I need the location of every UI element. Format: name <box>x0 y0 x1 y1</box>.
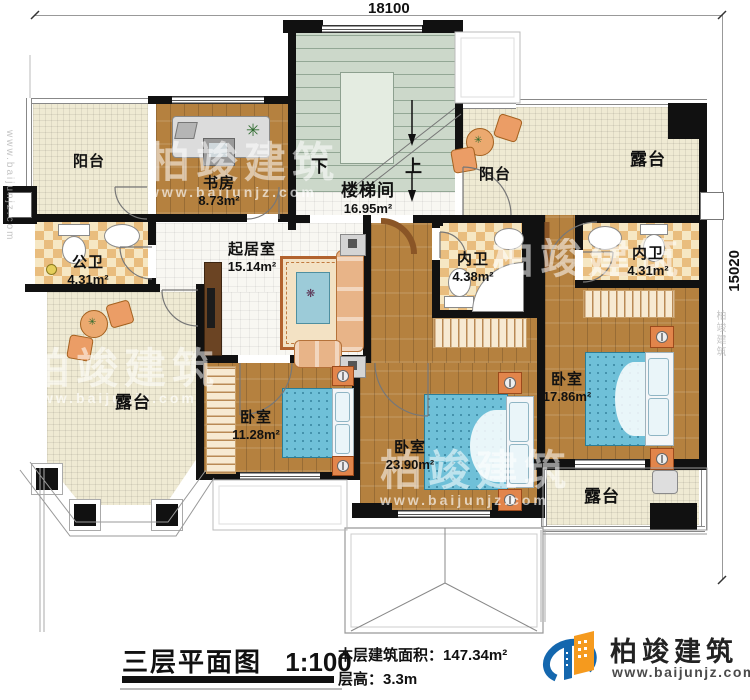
room-label-living: 起居室 15.14m² <box>228 238 276 274</box>
chair-icon <box>66 334 94 362</box>
roof-box-inner <box>461 38 514 97</box>
floorplan-canvas: 18100 15020 <box>0 0 750 700</box>
sink-icon <box>104 224 140 248</box>
wall <box>28 214 150 222</box>
floor-area-label: 本层建筑面积： <box>338 647 443 664</box>
wall <box>150 214 247 222</box>
pillar <box>36 468 58 490</box>
wall <box>278 214 296 222</box>
corridor-floor <box>371 223 432 363</box>
railing-balcony-tl-top <box>26 98 150 104</box>
room-label-bedroom-mid: 卧室 23.90m² <box>386 436 434 472</box>
brand-logo-icon <box>542 626 604 690</box>
sofa-icon <box>336 250 364 352</box>
brand-url: www.baijunjz.com <box>612 664 750 680</box>
wall <box>288 25 296 230</box>
nightstand-icon <box>332 456 354 476</box>
floor-area-value: 147.34m² <box>443 647 507 664</box>
wall <box>530 215 545 318</box>
wall <box>575 222 583 250</box>
title-underline-thick <box>122 676 334 683</box>
tv-icon <box>207 288 215 328</box>
nightstand-icon <box>650 326 674 348</box>
pillar <box>74 504 96 526</box>
wall <box>196 355 238 363</box>
side-table-lamp <box>348 239 357 248</box>
window-study <box>172 96 264 104</box>
window-box-right <box>700 192 724 220</box>
nightstand-icon <box>498 372 522 394</box>
nightstand-icon <box>498 489 522 511</box>
wall <box>455 25 463 162</box>
floor-height-label: 层高： <box>338 671 383 688</box>
floor-area-line: 本层建筑面积：147.34m² <box>338 644 507 665</box>
dimension-line-right <box>722 15 723 580</box>
wardrobe-hangers-icon <box>583 290 675 318</box>
roof-box-outline <box>455 32 520 103</box>
toilet-tank-icon <box>444 296 474 308</box>
wall-column <box>668 103 707 139</box>
eave-outline-inner <box>219 486 341 524</box>
sink-icon <box>588 226 622 250</box>
stair-landing <box>340 72 394 164</box>
room-label-bedroom-right: 卧室 17.86m² <box>543 368 591 404</box>
sink-icon <box>494 228 524 250</box>
plan-title-text: 三层平面图 <box>122 647 262 677</box>
wall <box>575 215 707 223</box>
table-plant-icon: ✳ <box>88 318 98 328</box>
wall <box>432 222 440 228</box>
plan-title: 三层平面图 1:100 <box>122 642 352 679</box>
room-label-balcony-tr: 阳台 <box>479 163 511 184</box>
room-label-terrace-bl: 露台 <box>115 388 151 413</box>
title-underline-thin <box>120 688 342 690</box>
nightstand-icon <box>650 448 674 470</box>
room-label-balcony-tl: 阳台 <box>73 150 105 171</box>
wall-column <box>650 503 697 530</box>
pillar <box>156 504 178 526</box>
dimension-top-value: 18100 <box>368 0 410 17</box>
desk-lamp-icon <box>174 122 198 139</box>
small-table-icon <box>652 470 678 494</box>
wall-corner-block <box>352 503 392 518</box>
room-label-public-bath: 公卫 4.31m² <box>67 251 108 287</box>
wardrobe-hangers-icon <box>433 318 527 348</box>
wall <box>537 318 545 518</box>
pillow-icon <box>509 402 529 442</box>
window-bedroom-right <box>575 459 645 470</box>
room-label-study: 书房 8.73m² <box>198 172 239 208</box>
room-label-terrace-br: 露台 <box>584 482 620 507</box>
room-label-bath1: 内卫 4.38m² <box>452 248 493 284</box>
stair-down-label: 下 <box>311 152 329 177</box>
room-label-bedroom-small: 卧室 11.28m² <box>232 406 280 442</box>
pillow-icon <box>648 398 669 436</box>
dimension-right-value: 15020 <box>726 250 743 292</box>
bed-icon <box>282 388 334 458</box>
toilet-tank-icon <box>58 224 90 236</box>
pillow-icon <box>648 358 669 396</box>
room-label-stairwell: 楼梯间 16.95m² <box>341 176 395 216</box>
logo-building-blue <box>564 644 572 680</box>
railing-terrace-br-right <box>701 470 707 530</box>
wall <box>196 284 204 480</box>
computer-screen <box>209 143 227 157</box>
wall <box>575 280 707 288</box>
floor-height-line: 层高：3.3m <box>338 668 417 689</box>
table-plant-icon: ✳ <box>474 136 484 146</box>
stair-up-label: 上 <box>405 152 423 177</box>
sofa-icon <box>294 340 342 368</box>
watermark-edge-right: 柏竣建筑 <box>712 310 727 460</box>
nightstand-icon <box>332 366 354 386</box>
window-bedroom-mid <box>398 510 490 518</box>
floor-height-value: 3.3m <box>383 671 417 688</box>
room-label-bath2: 内卫 4.31m² <box>627 242 668 278</box>
wall <box>148 214 156 245</box>
roof-outline <box>345 528 543 633</box>
pillow-icon <box>335 424 350 454</box>
watermark-edge-left: www.baijunjz.com <box>4 130 15 340</box>
plant-icon: ✳ <box>244 122 262 140</box>
roof-outline-inner <box>351 534 537 627</box>
railing-balcony-tr-top <box>455 103 516 109</box>
logo-building-orange <box>574 631 594 675</box>
pillow-icon <box>335 392 350 422</box>
wall <box>296 215 310 223</box>
wall <box>699 130 707 470</box>
room-label-terrace-tr: 露台 <box>630 145 666 170</box>
bed-blanket-fold <box>615 362 647 436</box>
floor-drain-icon <box>46 264 57 275</box>
chair-icon <box>450 146 478 174</box>
roof-hip-lines <box>351 528 537 631</box>
eave-outline <box>213 480 347 530</box>
table-flowers-icon: ❋ <box>306 288 318 300</box>
window-stairwell <box>322 25 422 33</box>
window-bedroom-small <box>240 472 320 480</box>
pillow-icon <box>509 444 529 484</box>
